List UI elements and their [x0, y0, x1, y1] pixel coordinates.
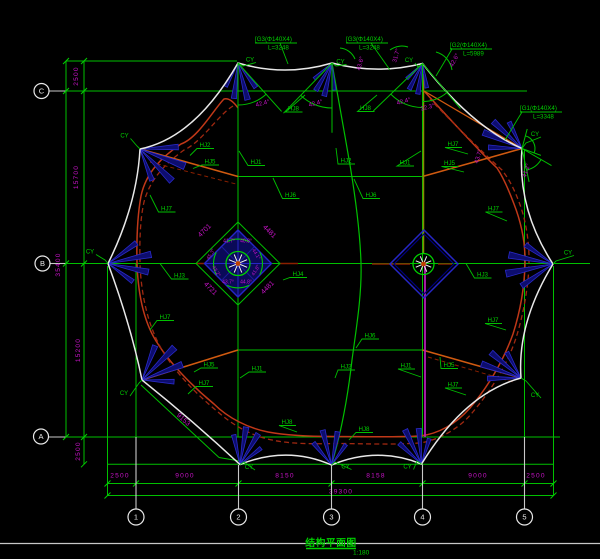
svg-text:1:180: 1:180: [353, 550, 370, 557]
svg-text:44.8°: 44.8°: [240, 280, 252, 286]
svg-text:L=3248: L=3248: [359, 45, 380, 52]
svg-text:8150: 8150: [275, 473, 294, 480]
svg-text:CY: CY: [531, 132, 539, 138]
svg-text:HJ1: HJ1: [399, 160, 411, 167]
svg-text:[G3(Φ140X4): [G3(Φ140X4): [346, 36, 383, 43]
svg-text:L=5989: L=5989: [463, 51, 484, 58]
svg-text:C: C: [39, 87, 45, 96]
svg-text:HJ7: HJ7: [161, 206, 173, 213]
svg-text:40.8°: 40.8°: [240, 239, 252, 245]
svg-text:CY: CY: [86, 250, 94, 256]
svg-text:15200: 15200: [75, 338, 82, 362]
svg-text:HJ7: HJ7: [198, 380, 210, 387]
svg-text:CY: CY: [245, 465, 253, 471]
svg-text:[G1(Φ140X4): [G1(Φ140X4): [520, 105, 557, 112]
svg-text:CY: CY: [120, 134, 128, 140]
svg-text:HJ8: HJ8: [360, 105, 372, 112]
svg-text:CY: CY: [564, 251, 572, 257]
svg-text:A: A: [38, 432, 43, 441]
svg-text:[G2(Φ140X4): [G2(Φ140X4): [450, 42, 487, 49]
svg-text:HJ8: HJ8: [358, 426, 370, 433]
svg-text:9000: 9000: [468, 473, 487, 480]
svg-text:CY: CY: [120, 391, 128, 397]
svg-text:HJ1: HJ1: [251, 366, 263, 373]
svg-text:HJ5: HJ5: [203, 362, 215, 369]
svg-text:L=3248: L=3248: [268, 45, 289, 52]
svg-text:HJ7: HJ7: [488, 206, 500, 213]
svg-text:2: 2: [236, 513, 240, 522]
svg-text:HJ7: HJ7: [487, 317, 499, 324]
svg-text:B: B: [40, 259, 45, 268]
svg-text:2500: 2500: [110, 473, 129, 480]
svg-text:8158: 8158: [366, 473, 385, 480]
svg-text:HJ7: HJ7: [447, 382, 459, 389]
svg-text:L=3348: L=3348: [533, 114, 554, 121]
svg-text:2500: 2500: [75, 441, 82, 460]
svg-text:[G3(Φ140X4): [G3(Φ140X4): [255, 36, 292, 43]
svg-text:39300: 39300: [329, 489, 353, 496]
svg-text:CY: CY: [336, 60, 344, 66]
svg-text:1: 1: [134, 513, 138, 522]
svg-text:4: 4: [420, 513, 424, 522]
svg-text:HJ6: HJ6: [365, 192, 377, 199]
svg-text:HJ2: HJ2: [340, 364, 352, 371]
svg-text:43.7°: 43.7°: [222, 280, 234, 286]
svg-text:HJ4: HJ4: [292, 271, 304, 278]
svg-text:HJ1: HJ1: [400, 363, 412, 370]
svg-text:HJ3: HJ3: [174, 273, 186, 280]
svg-text:41.7°: 41.7°: [223, 239, 235, 245]
svg-text:HJ1: HJ1: [250, 159, 262, 166]
svg-text:HJ6: HJ6: [364, 333, 376, 340]
svg-text:HJ2: HJ2: [340, 158, 352, 165]
svg-text:HJ3: HJ3: [477, 272, 489, 279]
svg-text:HJ5: HJ5: [204, 159, 216, 166]
svg-text:HJ7: HJ7: [159, 314, 171, 321]
svg-text:35400: 35400: [55, 252, 62, 276]
svg-text:结构平面图: 结构平面图: [305, 536, 356, 549]
svg-text:CY: CY: [405, 58, 413, 64]
svg-text:9000: 9000: [175, 473, 194, 480]
svg-text:HJ5: HJ5: [444, 160, 456, 167]
svg-text:HJ5: HJ5: [443, 362, 455, 369]
svg-text:CY: CY: [403, 465, 411, 471]
svg-text:2500: 2500: [526, 473, 545, 480]
svg-text:HJ7: HJ7: [447, 141, 459, 148]
svg-text:3: 3: [329, 513, 333, 522]
svg-text:2500: 2500: [73, 66, 80, 85]
svg-text:HJ8: HJ8: [288, 106, 300, 113]
svg-text:5: 5: [522, 513, 526, 522]
svg-text:15700: 15700: [73, 165, 80, 189]
svg-text:CY: CY: [341, 465, 349, 471]
svg-text:HJ6: HJ6: [285, 192, 297, 199]
svg-text:HJ2: HJ2: [199, 142, 211, 149]
svg-text:CY: CY: [246, 58, 254, 64]
svg-text:HJ8: HJ8: [281, 419, 293, 426]
svg-text:CY: CY: [531, 393, 539, 399]
